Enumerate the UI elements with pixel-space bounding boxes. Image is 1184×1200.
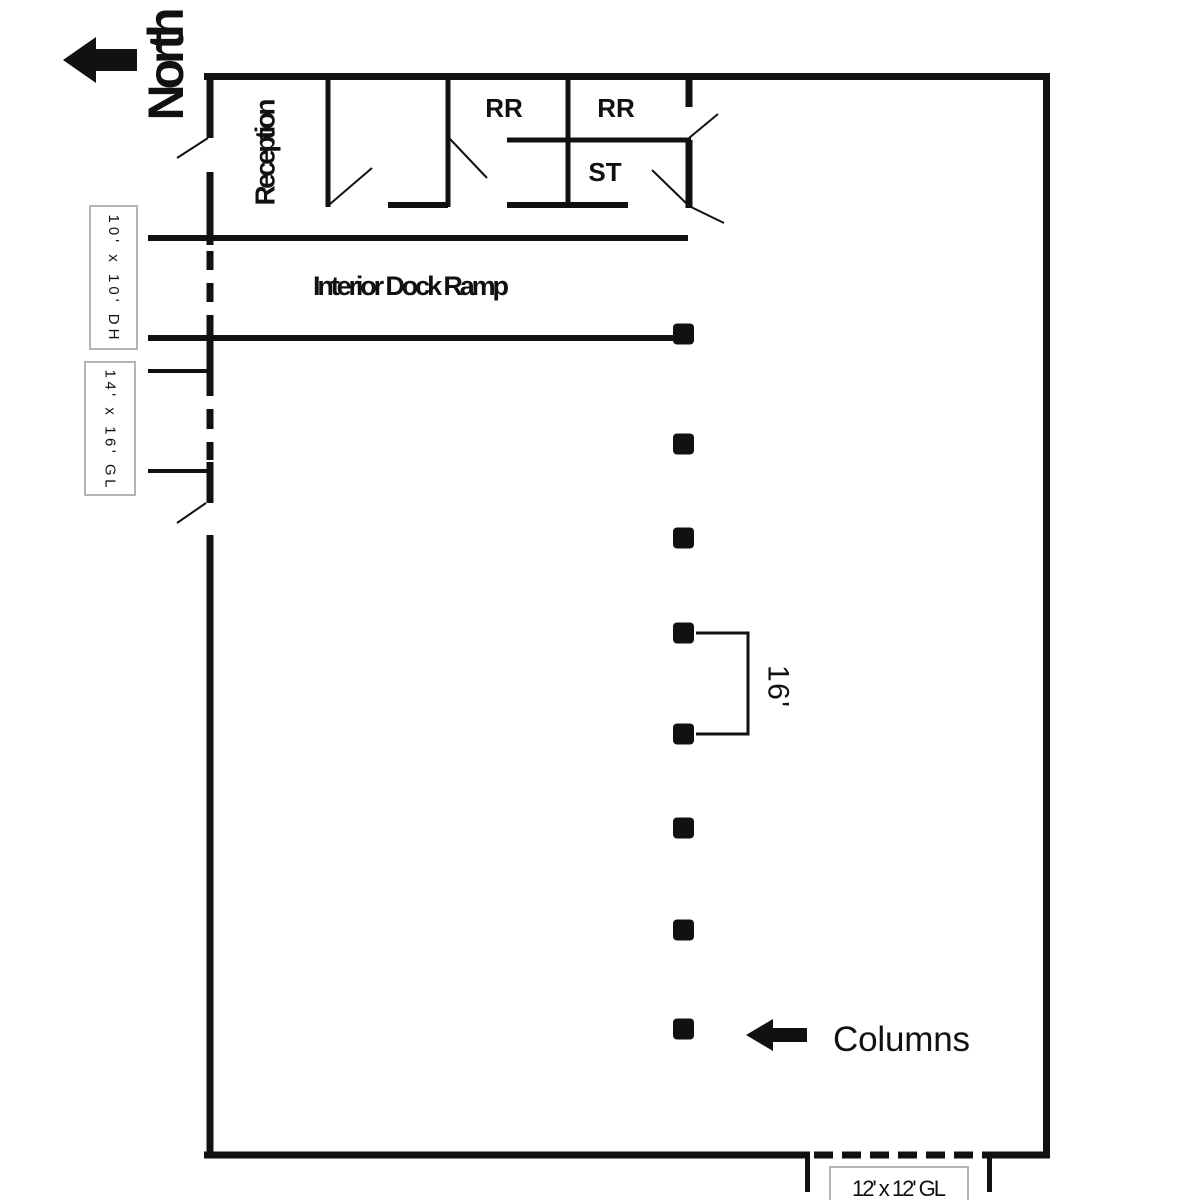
- storage-door-swing: [652, 170, 688, 205]
- entry-door-swing-upper-left: [177, 138, 208, 158]
- column-marker: [673, 724, 694, 745]
- column-marker: [673, 623, 694, 644]
- column-marker: [673, 1019, 694, 1040]
- column-markers: [673, 324, 694, 1040]
- dock-door-3-tag: 12' x 12' GL: [852, 1176, 946, 1200]
- column-marker: [673, 434, 694, 455]
- column-marker: [673, 528, 694, 549]
- reception-label: Reception: [250, 99, 281, 206]
- columns-callout: Columns: [746, 1019, 970, 1059]
- storage-label: ST: [588, 157, 621, 187]
- dock-door-2-tag: 14' x 16' GL: [102, 370, 119, 488]
- room-labels: Reception RR RR ST Interior Dock Ramp: [250, 93, 635, 301]
- floor-plan: 16' North Reception RR RR ST Interior Do…: [0, 0, 1184, 1200]
- dock-door-1-tag: 10' x 10' DH: [105, 215, 122, 340]
- north-label: North: [138, 8, 194, 121]
- dimension-bracket: [696, 633, 748, 734]
- column-marker: [673, 920, 694, 941]
- office-exit-door-swing-lower: [691, 207, 724, 223]
- interior-dock-ramp-label: Interior Dock Ramp: [313, 271, 509, 301]
- restroom-left-label: RR: [485, 93, 523, 123]
- column-marker: [673, 818, 694, 839]
- column-marker: [673, 324, 694, 345]
- office-exit-door-swing-upper: [689, 114, 718, 138]
- compass: North: [63, 8, 194, 121]
- restroom-right-label: RR: [597, 93, 635, 123]
- column-spacing-dimension: 16': [696, 633, 795, 734]
- restroom-left-door-swing: [450, 139, 487, 178]
- column-spacing-label: 16': [762, 665, 795, 707]
- north-arrow-icon: [63, 37, 137, 83]
- columns-arrow-icon: [746, 1019, 807, 1051]
- floor-plan-drawing: 16' North Reception RR RR ST Interior Do…: [0, 0, 1184, 1200]
- entry-door-swing-lower-left: [177, 503, 206, 523]
- columns-label: Columns: [833, 1020, 970, 1059]
- room-door-swing: [330, 168, 372, 204]
